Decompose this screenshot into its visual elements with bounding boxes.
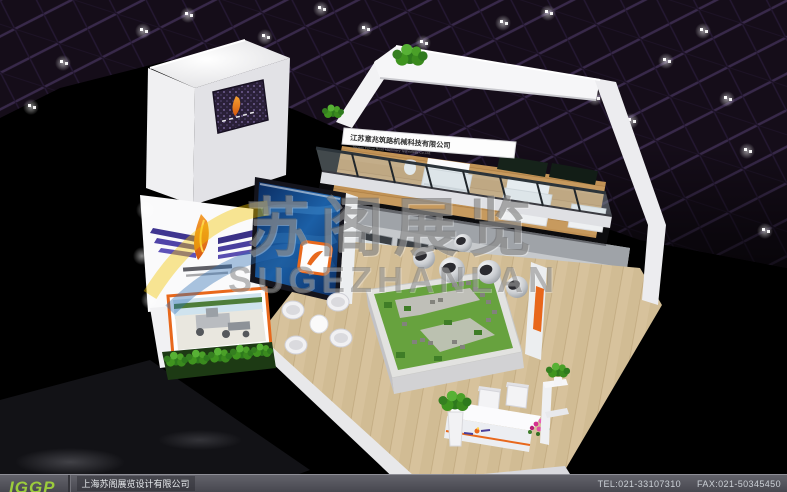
footer-logo: IGGP <box>9 478 56 492</box>
exhibition-render: 江苏意兆筑路机械科技有限公司 Jiangsu Yizhao Road Machi… <box>0 0 787 492</box>
sphere-chair <box>439 257 465 283</box>
reception-chair <box>506 382 529 408</box>
footer-telephone: TEL:021-33107310 <box>598 479 681 489</box>
sphere-chair <box>454 234 472 252</box>
sphere-chair <box>477 260 501 284</box>
footer-fax: FAX:021-50345450 <box>697 479 781 489</box>
footer-bar: IGGP 上海苏阁展览设计有限公司 TEL:021-33107310 FAX:0… <box>0 474 787 492</box>
booth-3d-scene: 江苏意兆筑路机械科技有限公司 Jiangsu Yizhao Road Machi… <box>0 0 787 492</box>
footer-divider <box>68 475 71 492</box>
coffee-table <box>310 315 328 333</box>
screen-content-sign <box>298 241 332 275</box>
footer-company-name: 上海苏阁展览设计有限公司 <box>77 476 195 491</box>
sphere-chair <box>413 247 435 269</box>
sphere-chair <box>506 276 528 298</box>
led-screen <box>250 177 358 304</box>
